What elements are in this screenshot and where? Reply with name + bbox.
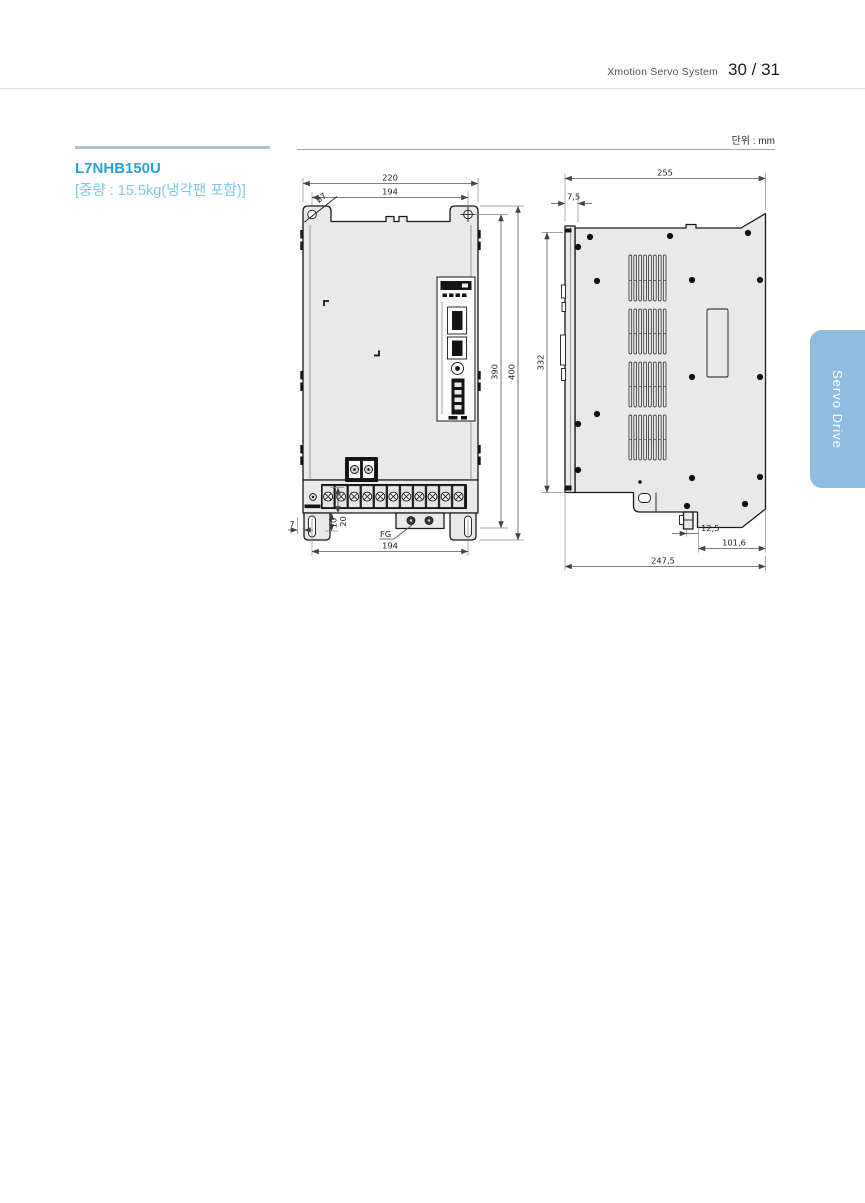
dim-front-slot-offset: 10	[329, 518, 339, 529]
dim-side-latch-offset: 12,5	[701, 523, 719, 533]
aux-terminal-block	[345, 457, 378, 482]
dim-front-edge-offset: 7	[289, 519, 294, 529]
side-body	[575, 214, 766, 528]
side-latch	[684, 512, 694, 529]
dim-side-hole-pitch: 332	[536, 355, 546, 371]
doc-title: Xmotion Servo System	[607, 66, 718, 78]
servo-drive-tab-label: Servo Drive	[830, 370, 845, 449]
dim-front-overall-height: 400	[507, 364, 517, 380]
side-front-face	[565, 226, 575, 493]
foot-left	[304, 513, 330, 540]
product-weight-note: [중량 : 15.5kg(냉각팬 포함)]	[75, 179, 246, 200]
unit-label: 단위 : mm	[600, 132, 775, 147]
terminal-cells	[322, 486, 464, 508]
page-number: 30 / 31	[728, 60, 780, 80]
mount-hole-left	[308, 210, 317, 219]
unit-rule	[297, 149, 775, 150]
dim-side-lower-depth: 101,6	[722, 538, 746, 548]
dim-front-terminal-height: 20	[338, 516, 348, 527]
dim-front-mounting-span-top: 194	[382, 187, 398, 197]
page: Xmotion Servo System 30 / 31 L7NHB150U […	[0, 0, 865, 1203]
dimension-drawing: 220 194 ø7	[285, 158, 795, 583]
title-rule	[75, 146, 270, 149]
dim-side-overall-depth: 255	[657, 168, 673, 178]
side-view: 255 7,5	[536, 168, 766, 571]
servo-drive-tab: Servo Drive	[810, 330, 865, 488]
dim-front-mounting-span-bottom: 194	[382, 541, 398, 551]
dim-front-overall-width: 220	[382, 173, 398, 183]
product-model: L7NHB150U	[75, 160, 161, 177]
label-front-fg: FG	[380, 529, 391, 539]
foot-right	[450, 513, 476, 540]
front-connector-panel	[437, 277, 475, 421]
dim-side-base-depth: 247,5	[651, 556, 675, 566]
header-rule	[0, 88, 865, 89]
header: Xmotion Servo System 30 / 31	[607, 60, 780, 80]
dim-front-hole-pitch: 390	[490, 364, 500, 380]
dim-front-hole-dia: ø7	[314, 191, 328, 205]
front-view: 220 194 ø7	[288, 173, 524, 557]
fg-ground-plate	[396, 513, 444, 529]
dim-side-top-offset: 7,5	[567, 192, 580, 202]
